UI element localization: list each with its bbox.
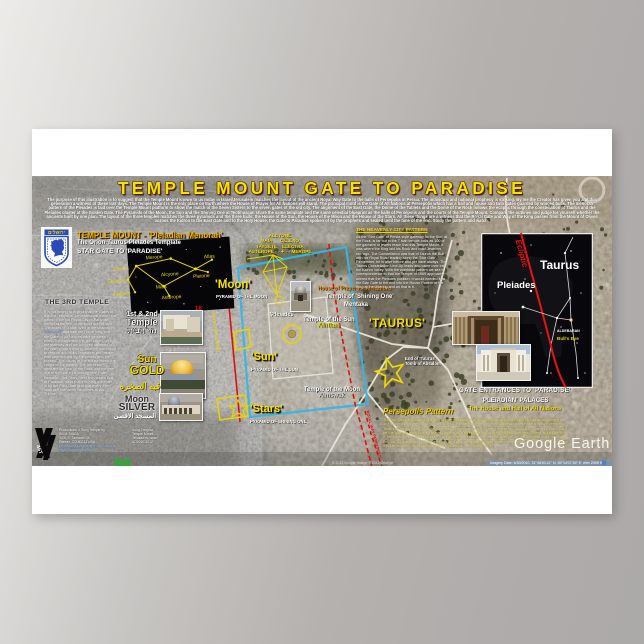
- svg-text:Merope: Merope: [145, 254, 163, 261]
- svg-text:Celaeno: Celaeno: [107, 278, 126, 285]
- svg-text:Taurus: Taurus: [540, 258, 579, 272]
- svg-text:Bull's Eye: Bull's Eye: [557, 336, 579, 341]
- svg-text:Maia: Maia: [156, 284, 167, 291]
- svg-text:Taygete: Taygete: [113, 290, 131, 297]
- svg-text:Pleione: Pleione: [193, 273, 210, 280]
- svg-text:Atlas: Atlas: [204, 253, 216, 260]
- svg-text:Alcyone: Alcyone: [161, 271, 179, 278]
- svg-text:Electra: Electra: [113, 266, 129, 273]
- svg-text:ירושלים: ירושלים: [48, 230, 66, 236]
- svg-text:Pleiades: Pleiades: [497, 280, 536, 291]
- svg-text:ALDEBARAN: ALDEBARAN: [557, 329, 580, 333]
